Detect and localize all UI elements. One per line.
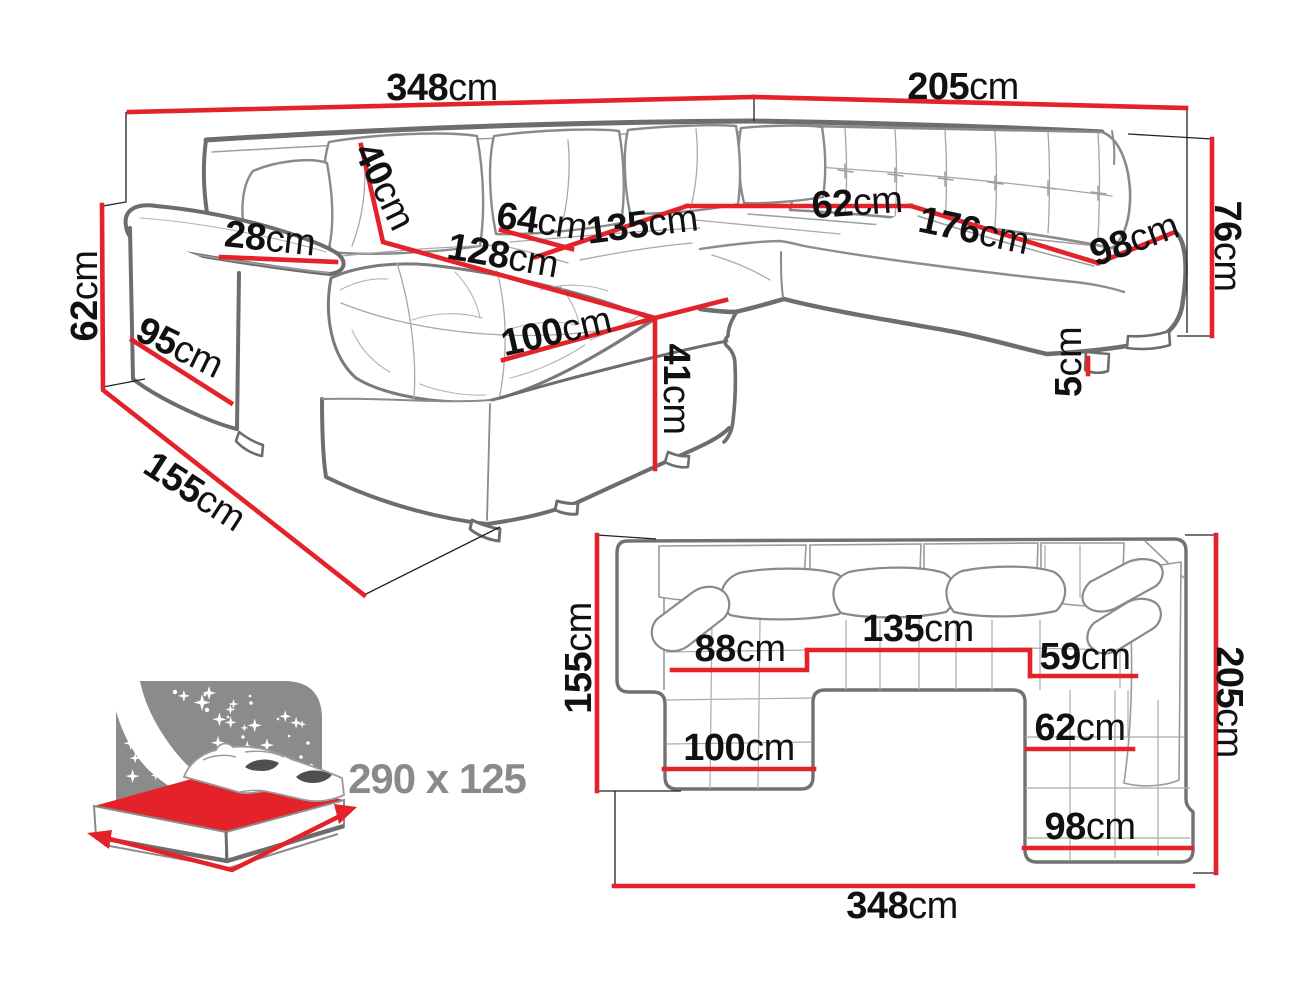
svg-text:290 x 125: 290 x 125 bbox=[348, 755, 526, 802]
svg-text:348cm: 348cm bbox=[846, 885, 958, 927]
svg-text:205cm: 205cm bbox=[1208, 646, 1250, 758]
svg-text:100cm: 100cm bbox=[683, 727, 795, 769]
svg-text:98cm: 98cm bbox=[1045, 806, 1136, 848]
svg-text:41cm: 41cm bbox=[655, 344, 697, 435]
svg-text:62cm: 62cm bbox=[810, 179, 904, 227]
svg-text:348cm: 348cm bbox=[386, 67, 498, 109]
svg-text:59cm: 59cm bbox=[1040, 636, 1131, 678]
svg-text:5cm: 5cm bbox=[1048, 327, 1090, 397]
svg-text:62cm: 62cm bbox=[1035, 707, 1126, 749]
svg-text:155cm: 155cm bbox=[558, 602, 600, 714]
svg-text:76cm: 76cm bbox=[1206, 201, 1248, 292]
svg-text:135cm: 135cm bbox=[862, 608, 974, 650]
svg-text:88cm: 88cm bbox=[695, 628, 786, 670]
svg-text:205cm: 205cm bbox=[907, 66, 1019, 108]
svg-text:62cm: 62cm bbox=[64, 251, 106, 342]
